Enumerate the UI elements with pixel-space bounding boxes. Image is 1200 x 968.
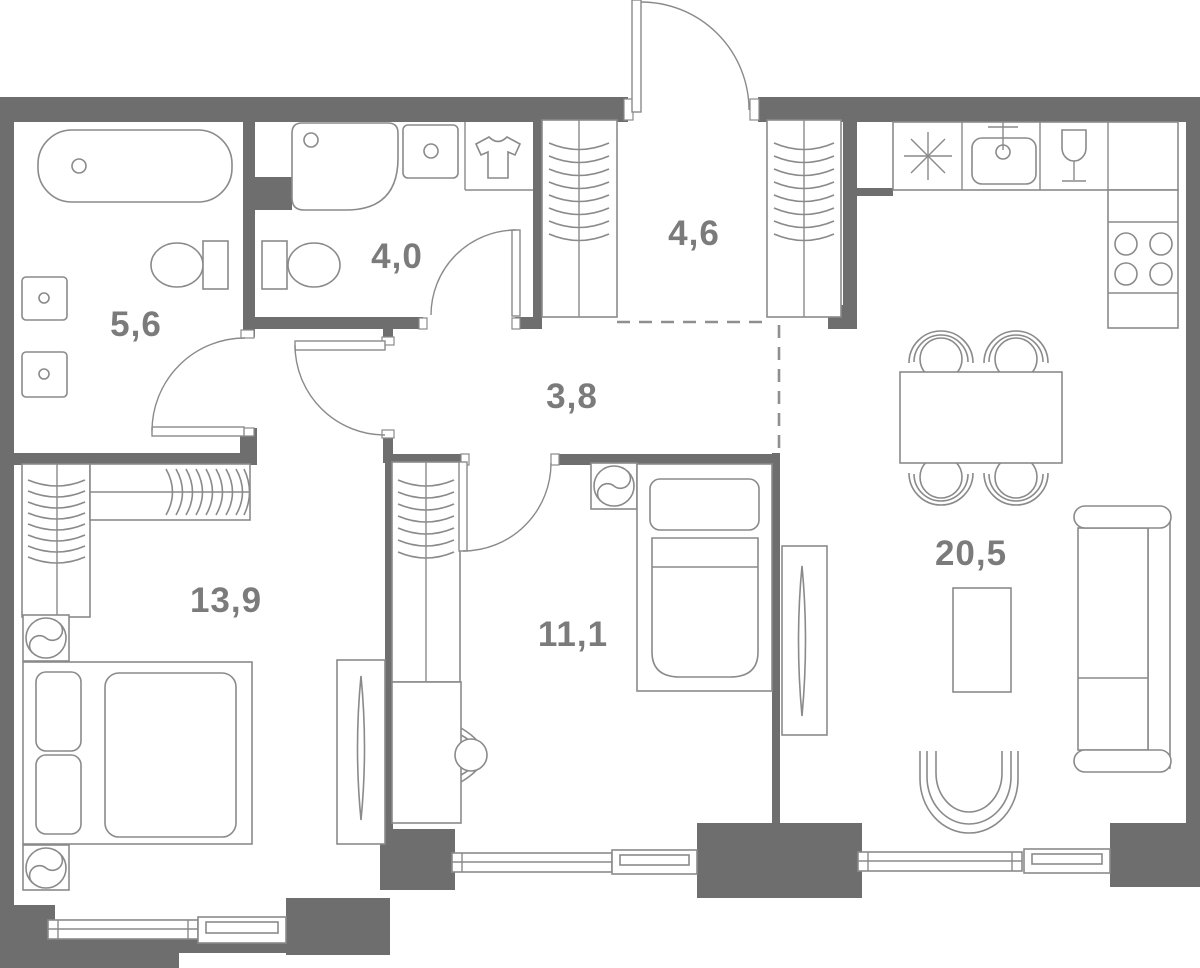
washbasin — [403, 122, 533, 190]
double-bed — [23, 662, 252, 844]
wardrobe-hangers — [90, 464, 250, 520]
shower-room-door — [419, 230, 520, 329]
single-bed — [637, 464, 772, 691]
entrance-door — [624, 0, 759, 120]
floor-plan: 5,6 4,0 4,6 3,8 13,9 11,1 20,5 — [0, 0, 1200, 968]
floor-plan-svg: 5,6 4,0 4,6 3,8 13,9 11,1 20,5 — [0, 0, 1200, 968]
wardrobe-hangers — [392, 462, 460, 682]
window-living — [858, 849, 1110, 873]
wardrobe-hangers — [767, 120, 841, 317]
coffee-table — [953, 588, 1011, 692]
label-hallway: 3,8 — [546, 377, 598, 416]
label-entry-wardrobe: 4,6 — [668, 214, 720, 253]
wardrobe-hangers — [22, 464, 90, 617]
label-kitchen-living: 20,5 — [935, 534, 1007, 573]
armchair — [920, 751, 1018, 833]
wardrobe-hangers — [542, 120, 617, 317]
label-bedroom-main: 13,9 — [190, 581, 262, 620]
bedroom-second-door — [459, 454, 559, 551]
laundry-tshirt-icon — [476, 137, 520, 178]
kitchen — [893, 122, 1178, 328]
label-bedroom-second: 11,1 — [538, 615, 608, 654]
desk — [392, 682, 461, 823]
nightstand-yin-yang — [23, 615, 69, 661]
dashed-zone-boundary — [617, 322, 779, 453]
label-shower-room: 4,0 — [371, 237, 423, 276]
nightstand-yin-yang — [23, 845, 69, 890]
sofa — [1074, 506, 1171, 772]
toilet — [262, 241, 340, 289]
mirror-wardrobe — [337, 660, 385, 844]
hallway-door — [295, 337, 394, 438]
nightstand-yin-yang — [591, 463, 637, 509]
window-bedroom-main — [48, 917, 286, 943]
label-bathroom: 5,6 — [110, 305, 162, 344]
refrigerator-snowflake-icon — [904, 132, 952, 180]
dining-set — [900, 331, 1062, 505]
mirror-wardrobe — [782, 546, 827, 735]
dining-table — [900, 372, 1062, 463]
windows — [48, 849, 1110, 943]
shower-tray — [292, 123, 398, 210]
bathroom-fixtures — [22, 130, 232, 397]
washbasin-cabinet — [22, 277, 67, 397]
toilet — [151, 241, 228, 289]
cooktop-4-burners — [1108, 190, 1178, 328]
window-bedroom-second — [452, 850, 697, 874]
bathroom-door — [152, 330, 254, 436]
bedroom-main-furniture — [22, 464, 385, 890]
bathtub — [38, 130, 232, 202]
